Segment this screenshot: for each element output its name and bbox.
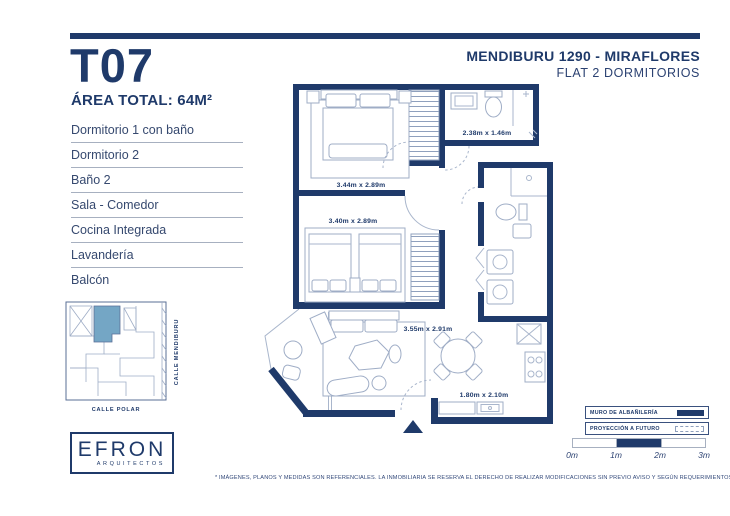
washer-icon: [487, 250, 513, 274]
scale-segment: [662, 439, 705, 447]
room-list: Dormitorio 1 con baño Dormitorio 2 Baño …: [71, 118, 243, 292]
dryer-icon: [487, 280, 513, 304]
toilet-icon: [519, 204, 527, 220]
plan-legend: MURO DE ALBAÑILERÍA PROYECCIÓN A FUTURO: [585, 406, 709, 438]
stove-icon: [525, 352, 545, 382]
scale-segment: [573, 439, 617, 447]
brochure-page: T07 ÁREA TOTAL: 64M² Dormitorio 1 con ba…: [0, 0, 730, 516]
toilet-icon: [485, 91, 502, 97]
scale-tick-label: 0m: [566, 450, 578, 460]
legend-row-future: PROYECCIÓN A FUTURO: [585, 422, 709, 435]
architect-logo: EFRON ARQUITECTOS: [70, 432, 174, 474]
dashed-future-swatch: [675, 426, 704, 432]
balcony-chair: [282, 364, 302, 381]
legend-row-wall: MURO DE ALBAÑILERÍA: [585, 406, 709, 419]
scale-labels: 0m 1m 2m 3m: [572, 450, 704, 462]
dimension-label: 3.40m x 2.89m: [329, 218, 378, 225]
sink-icon: [513, 224, 531, 238]
bathroom2-fixtures: [496, 168, 547, 238]
room-list-item: Dormitorio 2: [71, 143, 243, 168]
site-map: CALLE MENDIBURU CALLE POLAR: [58, 298, 190, 423]
floor-plan-svg: 3.44m x 2.89m 2.38m x 1.46m 3.40m x 2.89…: [263, 84, 563, 436]
legend-label: PROYECCIÓN A FUTURO: [590, 426, 660, 432]
scale-tick-label: 1m: [610, 450, 622, 460]
scale-tick-label: 3m: [698, 450, 710, 460]
project-subtitle: FLAT 2 DORMITORIOS: [466, 66, 700, 80]
wardrobe-icon: [409, 90, 439, 160]
logo-tagline: ARQUITECTOS: [97, 461, 165, 467]
dimension-label: 2.38m x 1.46m: [463, 130, 512, 137]
solid-wall-swatch: [677, 410, 704, 416]
logo-name: EFRON: [78, 440, 167, 460]
legend-label: MURO DE ALBAÑILERÍA: [590, 410, 658, 416]
side-table: [389, 345, 401, 363]
top-rule: [70, 33, 700, 39]
balcony-table: [284, 341, 302, 359]
dimension-label: 3.55m x 2.91m: [404, 326, 453, 333]
unit-code: T07: [70, 38, 154, 93]
room-list-item: Lavandería: [71, 243, 243, 268]
disclaimer-text: * IMÁGENES, PLANOS Y MEDIDAS SON REFEREN…: [215, 475, 715, 481]
room-list-item: Baño 2: [71, 168, 243, 193]
balcony-outline: [265, 309, 307, 414]
dining-table: [433, 331, 483, 381]
double-bed: [307, 90, 411, 178]
project-header: MENDIBURU 1290 - MIRAFLORES FLAT 2 DORMI…: [466, 48, 700, 80]
street-label-right: CALLE MENDIBURU: [174, 319, 180, 385]
room-list-item: Dormitorio 1 con baño: [71, 118, 243, 143]
scale-bar: [572, 438, 706, 448]
entry-arrow-icon: [403, 420, 423, 433]
dimension-label: 3.44m x 2.89m: [337, 182, 386, 189]
floor-plan: 3.44m x 2.89m 2.38m x 1.46m 3.40m x 2.89…: [263, 84, 563, 441]
room-list-item: Cocina Integrada: [71, 218, 243, 243]
scale-tick-label: 2m: [654, 450, 666, 460]
balcony-furniture: [282, 341, 302, 381]
room-list-item: Balcón: [71, 268, 243, 292]
site-map-svg: CALLE MENDIBURU CALLE POLAR: [58, 298, 190, 418]
room-list-item: Sala - Comedor: [71, 193, 243, 218]
wardrobe-icon: [411, 234, 439, 300]
dimension-label: 1.80m x 2.10m: [460, 392, 509, 399]
bifold-door: [476, 248, 484, 290]
highlighted-unit: [94, 306, 120, 342]
project-title: MENDIBURU 1290 - MIRAFLORES: [466, 48, 700, 64]
street-label-bottom: CALLE POLAR: [92, 407, 141, 413]
area-total: ÁREA TOTAL: 64M²: [71, 92, 212, 109]
single-beds: [305, 228, 405, 302]
scale-segment-filled: [617, 439, 661, 447]
